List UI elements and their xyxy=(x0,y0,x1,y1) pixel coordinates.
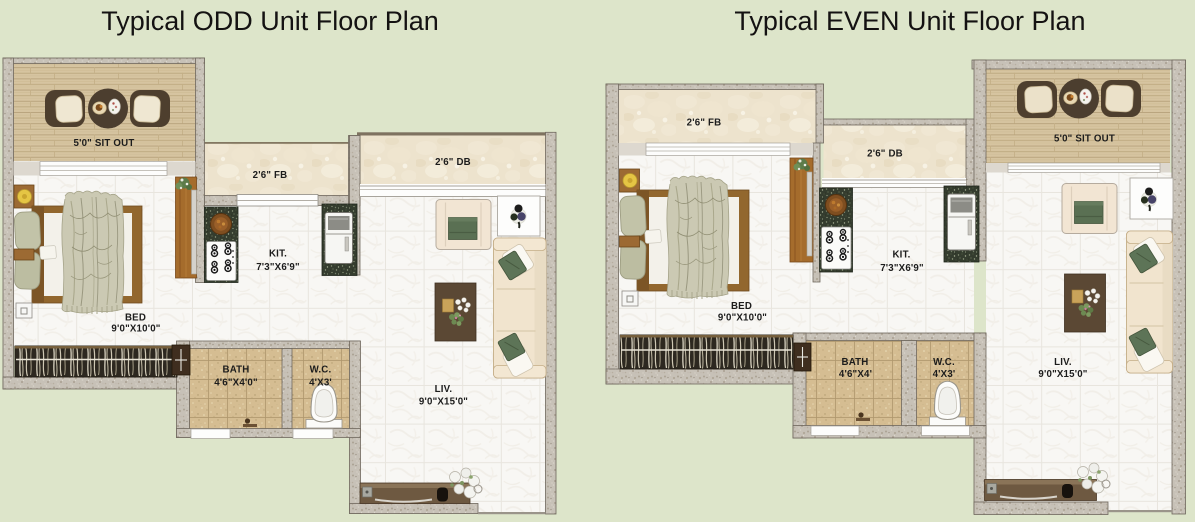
svg-text:5'0" SIT OUT: 5'0" SIT OUT xyxy=(1054,134,1115,145)
svg-text:LIV.: LIV. xyxy=(435,384,453,395)
svg-text:KIT.: KIT. xyxy=(892,250,910,261)
svg-text:W.C.: W.C. xyxy=(310,365,332,376)
svg-text:9'0"X15'0": 9'0"X15'0" xyxy=(1038,369,1087,380)
svg-text:9'0"X10'0": 9'0"X10'0" xyxy=(718,313,767,324)
svg-text:4'6"X4'0": 4'6"X4'0" xyxy=(214,378,258,389)
svg-text:9'0"X10'0": 9'0"X10'0" xyxy=(111,324,160,335)
svg-text:7'3"X6'9": 7'3"X6'9" xyxy=(880,263,924,274)
svg-text:BATH: BATH xyxy=(223,365,250,376)
svg-text:KIT.: KIT. xyxy=(269,249,287,260)
svg-text:2'6" DB: 2'6" DB xyxy=(435,157,471,168)
svg-text:2'6" FB: 2'6" FB xyxy=(253,170,288,181)
svg-text:W.C.: W.C. xyxy=(933,357,955,368)
svg-text:4'6"X4': 4'6"X4' xyxy=(839,369,872,380)
svg-text:4'X3': 4'X3' xyxy=(933,369,956,380)
svg-text:2'6" DB: 2'6" DB xyxy=(867,149,903,160)
svg-text:BATH: BATH xyxy=(842,357,869,368)
svg-text:BED: BED xyxy=(125,313,146,324)
svg-text:Typical EVEN Unit Floor Plan: Typical EVEN Unit Floor Plan xyxy=(734,6,1085,36)
svg-text:9'0"X15'0": 9'0"X15'0" xyxy=(419,397,468,408)
svg-text:7'3"X6'9": 7'3"X6'9" xyxy=(256,262,300,273)
svg-text:5'0" SIT OUT: 5'0" SIT OUT xyxy=(74,138,135,149)
svg-text:4'X3': 4'X3' xyxy=(309,378,332,389)
svg-text:2'6" FB: 2'6" FB xyxy=(687,118,722,129)
svg-text:BED: BED xyxy=(731,301,752,312)
svg-text:Typical ODD Unit Floor Plan: Typical ODD Unit Floor Plan xyxy=(101,6,439,36)
svg-text:LIV.: LIV. xyxy=(1054,357,1072,368)
